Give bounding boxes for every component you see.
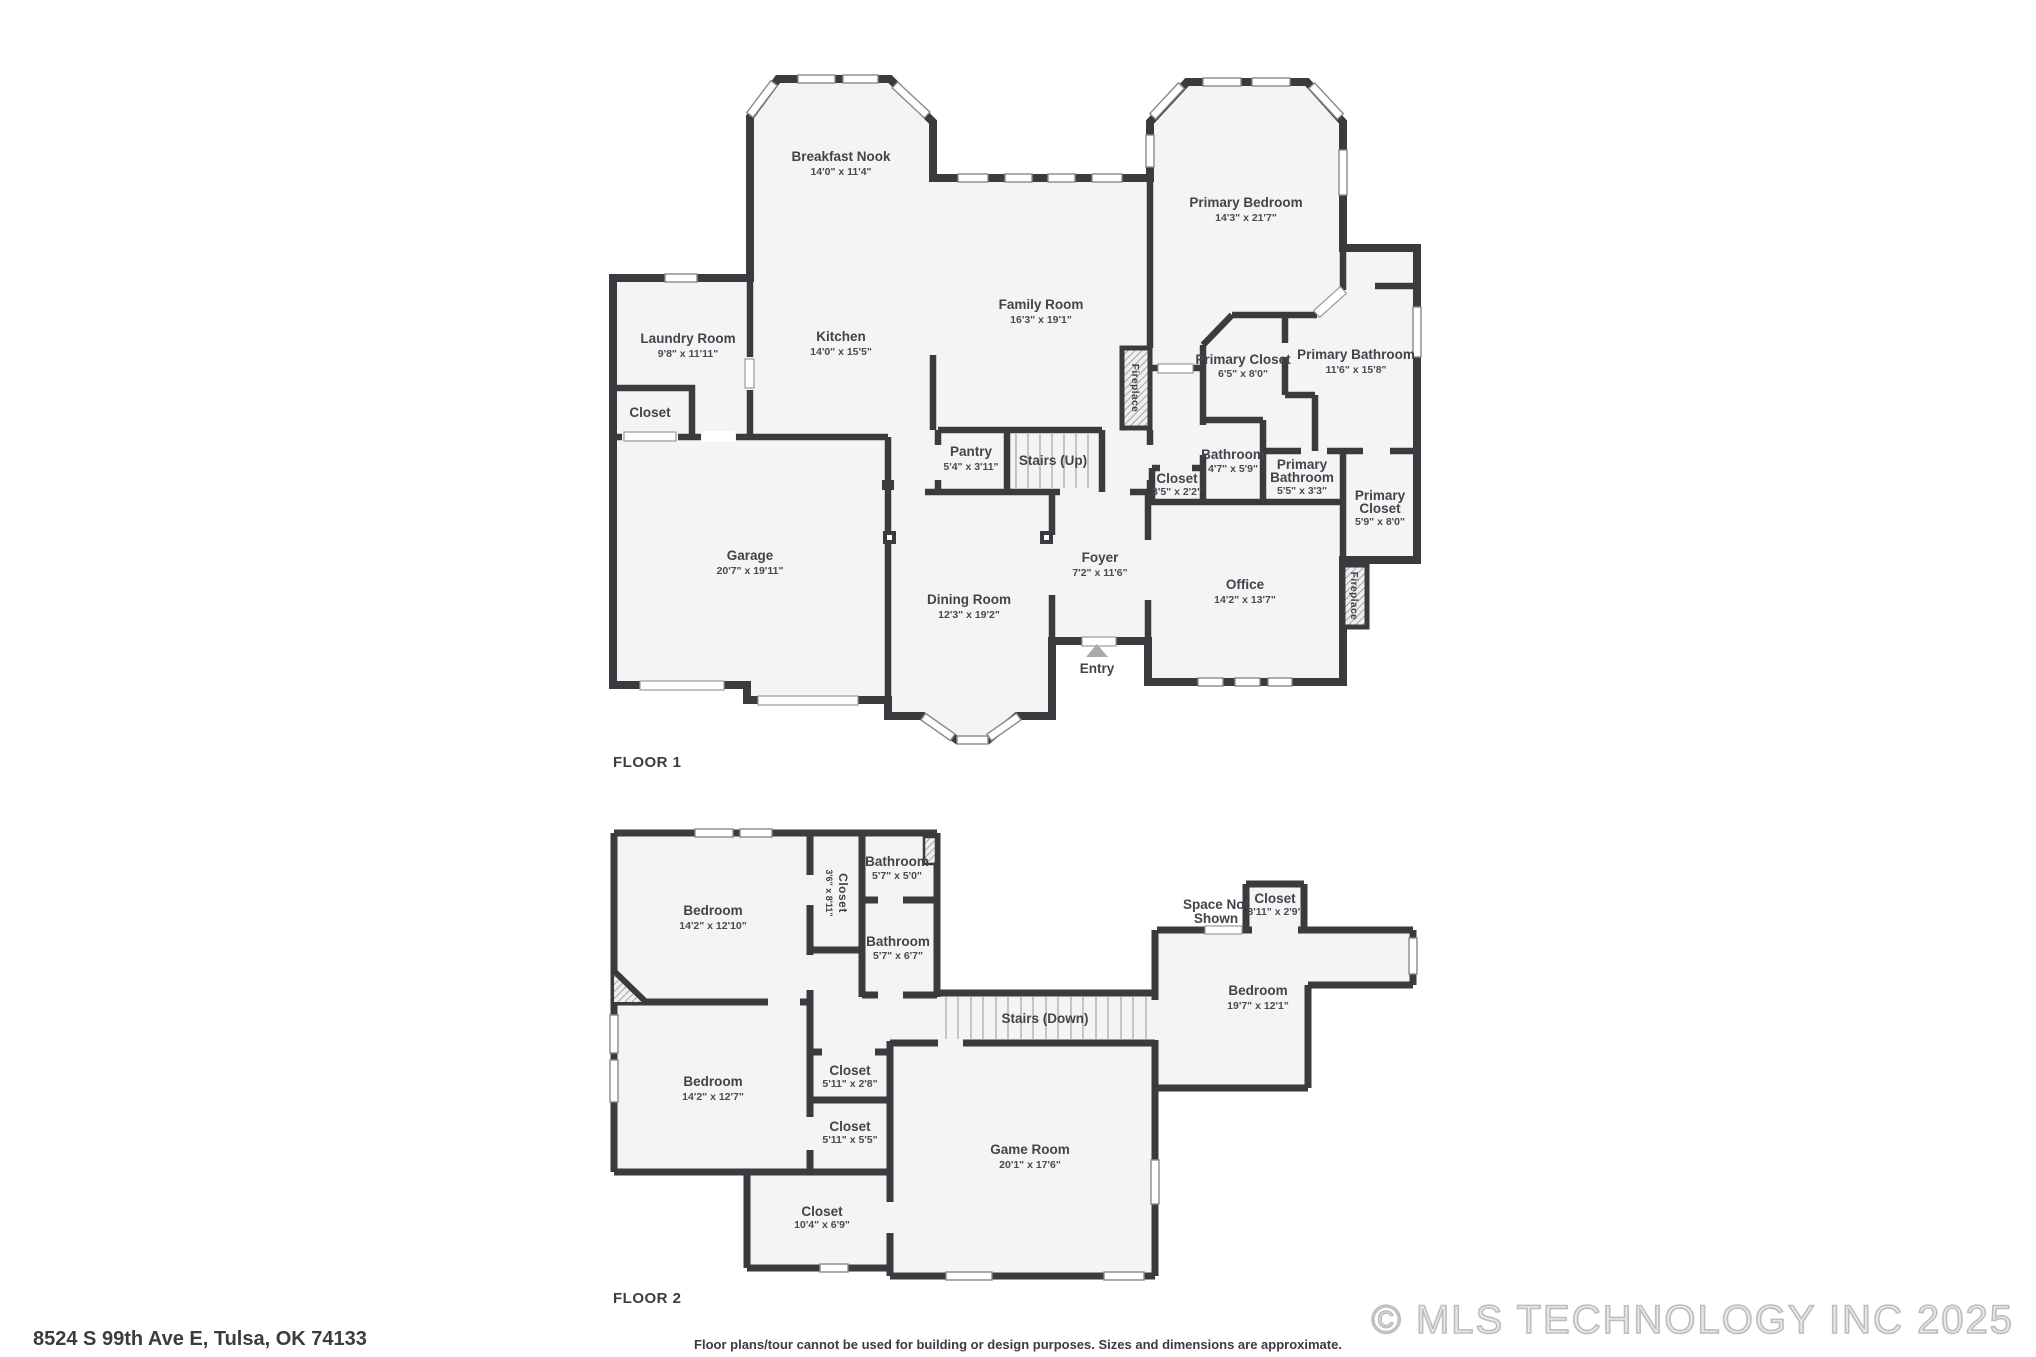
svg-text:Closet: Closet [836, 873, 850, 913]
svg-text:14'3" x 21'7": 14'3" x 21'7" [1215, 212, 1277, 224]
svg-text:Family Room: Family Room [999, 297, 1084, 312]
room-label-closet-1: Closet 3'6" x 8'11" [824, 869, 850, 916]
svg-text:19'7" x 12'1": 19'7" x 12'1" [1227, 1000, 1289, 1012]
svg-text:Bedroom: Bedroom [1228, 983, 1287, 998]
svg-text:12'3" x 19'2": 12'3" x 19'2" [938, 609, 1000, 621]
svg-text:Bedroom: Bedroom [683, 1074, 742, 1089]
room-label-dining-room: Dining Room 12'3" x 19'2" [927, 592, 1011, 621]
room-label-kitchen: Kitchen 14'0" x 15'5" [810, 329, 872, 358]
svg-text:5'11" x 5'5": 5'11" x 5'5" [822, 1134, 877, 1146]
room-label-bathroom: Bathroom 4'7" x 5'9" [1201, 447, 1265, 475]
svg-text:5'7" x 5'0": 5'7" x 5'0" [872, 870, 922, 882]
svg-text:Space Not: Space Not [1183, 897, 1250, 912]
svg-text:Closet: Closet [1254, 891, 1296, 906]
svg-text:16'3" x 19'1": 16'3" x 19'1" [1010, 314, 1072, 326]
room-label-closet-2: Closet 3'11" x 2'9" [1247, 891, 1302, 918]
room-label-space-not-shown: Space Not Shown [1183, 897, 1250, 926]
svg-text:14'0" x 15'5": 14'0" x 15'5" [810, 346, 872, 358]
room-label-hall-closet: Closet 3'5" x 2'2" [1152, 471, 1202, 498]
svg-text:14'2" x 12'10": 14'2" x 12'10" [679, 920, 747, 932]
kitchen-doorway [702, 431, 735, 442]
space-not-shown-opening [1205, 926, 1242, 934]
svg-text:Bedroom: Bedroom [683, 903, 742, 918]
svg-text:5'9" x 8'0": 5'9" x 8'0" [1355, 516, 1405, 528]
svg-text:Primary Closet: Primary Closet [1195, 352, 1291, 367]
room-label-bedroom-1: Bedroom 14'2" x 12'10" [679, 903, 747, 932]
svg-text:Bathroom: Bathroom [866, 934, 930, 949]
svg-text:Office: Office [1226, 577, 1265, 592]
svg-text:3'11" x 2'9": 3'11" x 2'9" [1247, 906, 1302, 918]
room-label-bathroom-2: Bathroom 5'7" x 6'7" [866, 934, 930, 962]
floor-plan-drawing: Breakfast Nook 14'0" x 11'4" Primary Bed… [0, 0, 2036, 1357]
floor2-plan: Bedroom 14'2" x 12'10" Closet 3'6" x 8'1… [610, 829, 1417, 1307]
svg-text:Closet: Closet [1156, 471, 1198, 486]
floor1-title: FLOOR 1 [613, 754, 682, 771]
room-label-bedroom-3: Bedroom 14'2" x 12'7" [682, 1074, 744, 1103]
svg-text:Pantry: Pantry [950, 444, 993, 459]
floor-plan-page: Breakfast Nook 14'0" x 11'4" Primary Bed… [0, 0, 2036, 1357]
room-label-laundry-closet: Closet [629, 405, 671, 420]
svg-text:5'5" x 3'3": 5'5" x 3'3" [1277, 485, 1327, 497]
floor2-title: FLOOR 2 [613, 1290, 682, 1307]
svg-text:Laundry Room: Laundry Room [640, 331, 735, 346]
room-label-family-room: Family Room 16'3" x 19'1" [999, 297, 1084, 326]
svg-text:3'6" x 8'11": 3'6" x 8'11" [824, 869, 834, 916]
svg-text:Bathroom: Bathroom [865, 854, 929, 869]
svg-text:Closet: Closet [1359, 501, 1401, 516]
svg-text:Bathroom: Bathroom [1201, 447, 1265, 462]
room-label-game-room: Game Room 20'1" x 17'6" [990, 1142, 1070, 1171]
svg-text:7'2" x 11'6": 7'2" x 11'6" [1072, 567, 1127, 579]
svg-text:Game Room: Game Room [990, 1142, 1070, 1157]
room-label-closet-5: Closet 10'4" x 6'9" [794, 1204, 850, 1231]
room-label-primary-bathroom-2: Primary Bathroom 5'5" x 3'3" [1270, 457, 1334, 497]
room-label-stairs-down: Stairs (Down) [1001, 1011, 1088, 1026]
svg-text:5'7" x 6'7": 5'7" x 6'7" [873, 950, 923, 962]
room-label-bedroom-2: Bedroom 19'7" x 12'1" [1227, 983, 1289, 1012]
room-label-stairs-up: Stairs (Up) [1019, 453, 1087, 468]
svg-text:Closet: Closet [829, 1063, 871, 1078]
room-label-entry: Entry [1080, 661, 1115, 676]
svg-text:14'0" x 11'4": 14'0" x 11'4" [810, 166, 871, 178]
office-fireplace-label: Fireplace [1348, 572, 1359, 620]
svg-text:4'7" x 5'9": 4'7" x 5'9" [1208, 463, 1258, 475]
svg-text:5'4" x 3'11": 5'4" x 3'11" [943, 461, 998, 473]
svg-text:Shown: Shown [1194, 911, 1238, 926]
room-label-primary-closet-2: Primary Closet 5'9" x 8'0" [1355, 488, 1406, 528]
svg-text:20'7" x 19'11": 20'7" x 19'11" [717, 565, 784, 577]
svg-text:Bathroom: Bathroom [1270, 470, 1334, 485]
family-fireplace-label: Fireplace [1129, 364, 1140, 412]
svg-text:6'5" x 8'0": 6'5" x 8'0" [1218, 368, 1268, 380]
svg-text:Primary Bedroom: Primary Bedroom [1189, 195, 1302, 210]
svg-text:10'4" x 6'9": 10'4" x 6'9" [794, 1219, 850, 1231]
svg-text:20'1" x 17'6": 20'1" x 17'6" [999, 1159, 1061, 1171]
room-label-pantry: Pantry 5'4" x 3'11" [943, 444, 998, 473]
svg-text:Closet: Closet [829, 1119, 871, 1134]
svg-text:Dining Room: Dining Room [927, 592, 1011, 607]
svg-text:Kitchen: Kitchen [816, 329, 866, 344]
svg-text:11'6" x 15'8": 11'6" x 15'8" [1325, 364, 1386, 376]
room-label-closet-3: Closet 5'11" x 2'8" [822, 1063, 877, 1090]
floor1-plan: Breakfast Nook 14'0" x 11'4" Primary Bed… [613, 75, 1421, 771]
svg-text:14'2" x 12'7": 14'2" x 12'7" [682, 1091, 744, 1103]
room-label-closet-4: Closet 5'11" x 5'5" [822, 1119, 877, 1146]
room-label-bathroom-1: Bathroom 5'7" x 5'0" [865, 854, 929, 882]
svg-text:3'5" x 2'2": 3'5" x 2'2" [1152, 486, 1202, 498]
svg-text:Primary Bathroom: Primary Bathroom [1297, 347, 1415, 362]
svg-text:Closet: Closet [801, 1204, 843, 1219]
svg-text:Garage: Garage [727, 548, 774, 563]
svg-text:Breakfast Nook: Breakfast Nook [791, 149, 891, 164]
mls-watermark: © MLS TECHNOLOGY INC 2025 [1371, 1298, 2014, 1343]
svg-text:5'11" x 2'8": 5'11" x 2'8" [822, 1078, 877, 1090]
svg-text:Foyer: Foyer [1082, 550, 1120, 565]
svg-text:9'8" x 11'11": 9'8" x 11'11" [658, 348, 719, 360]
svg-text:14'2" x 13'7": 14'2" x 13'7" [1214, 594, 1276, 606]
